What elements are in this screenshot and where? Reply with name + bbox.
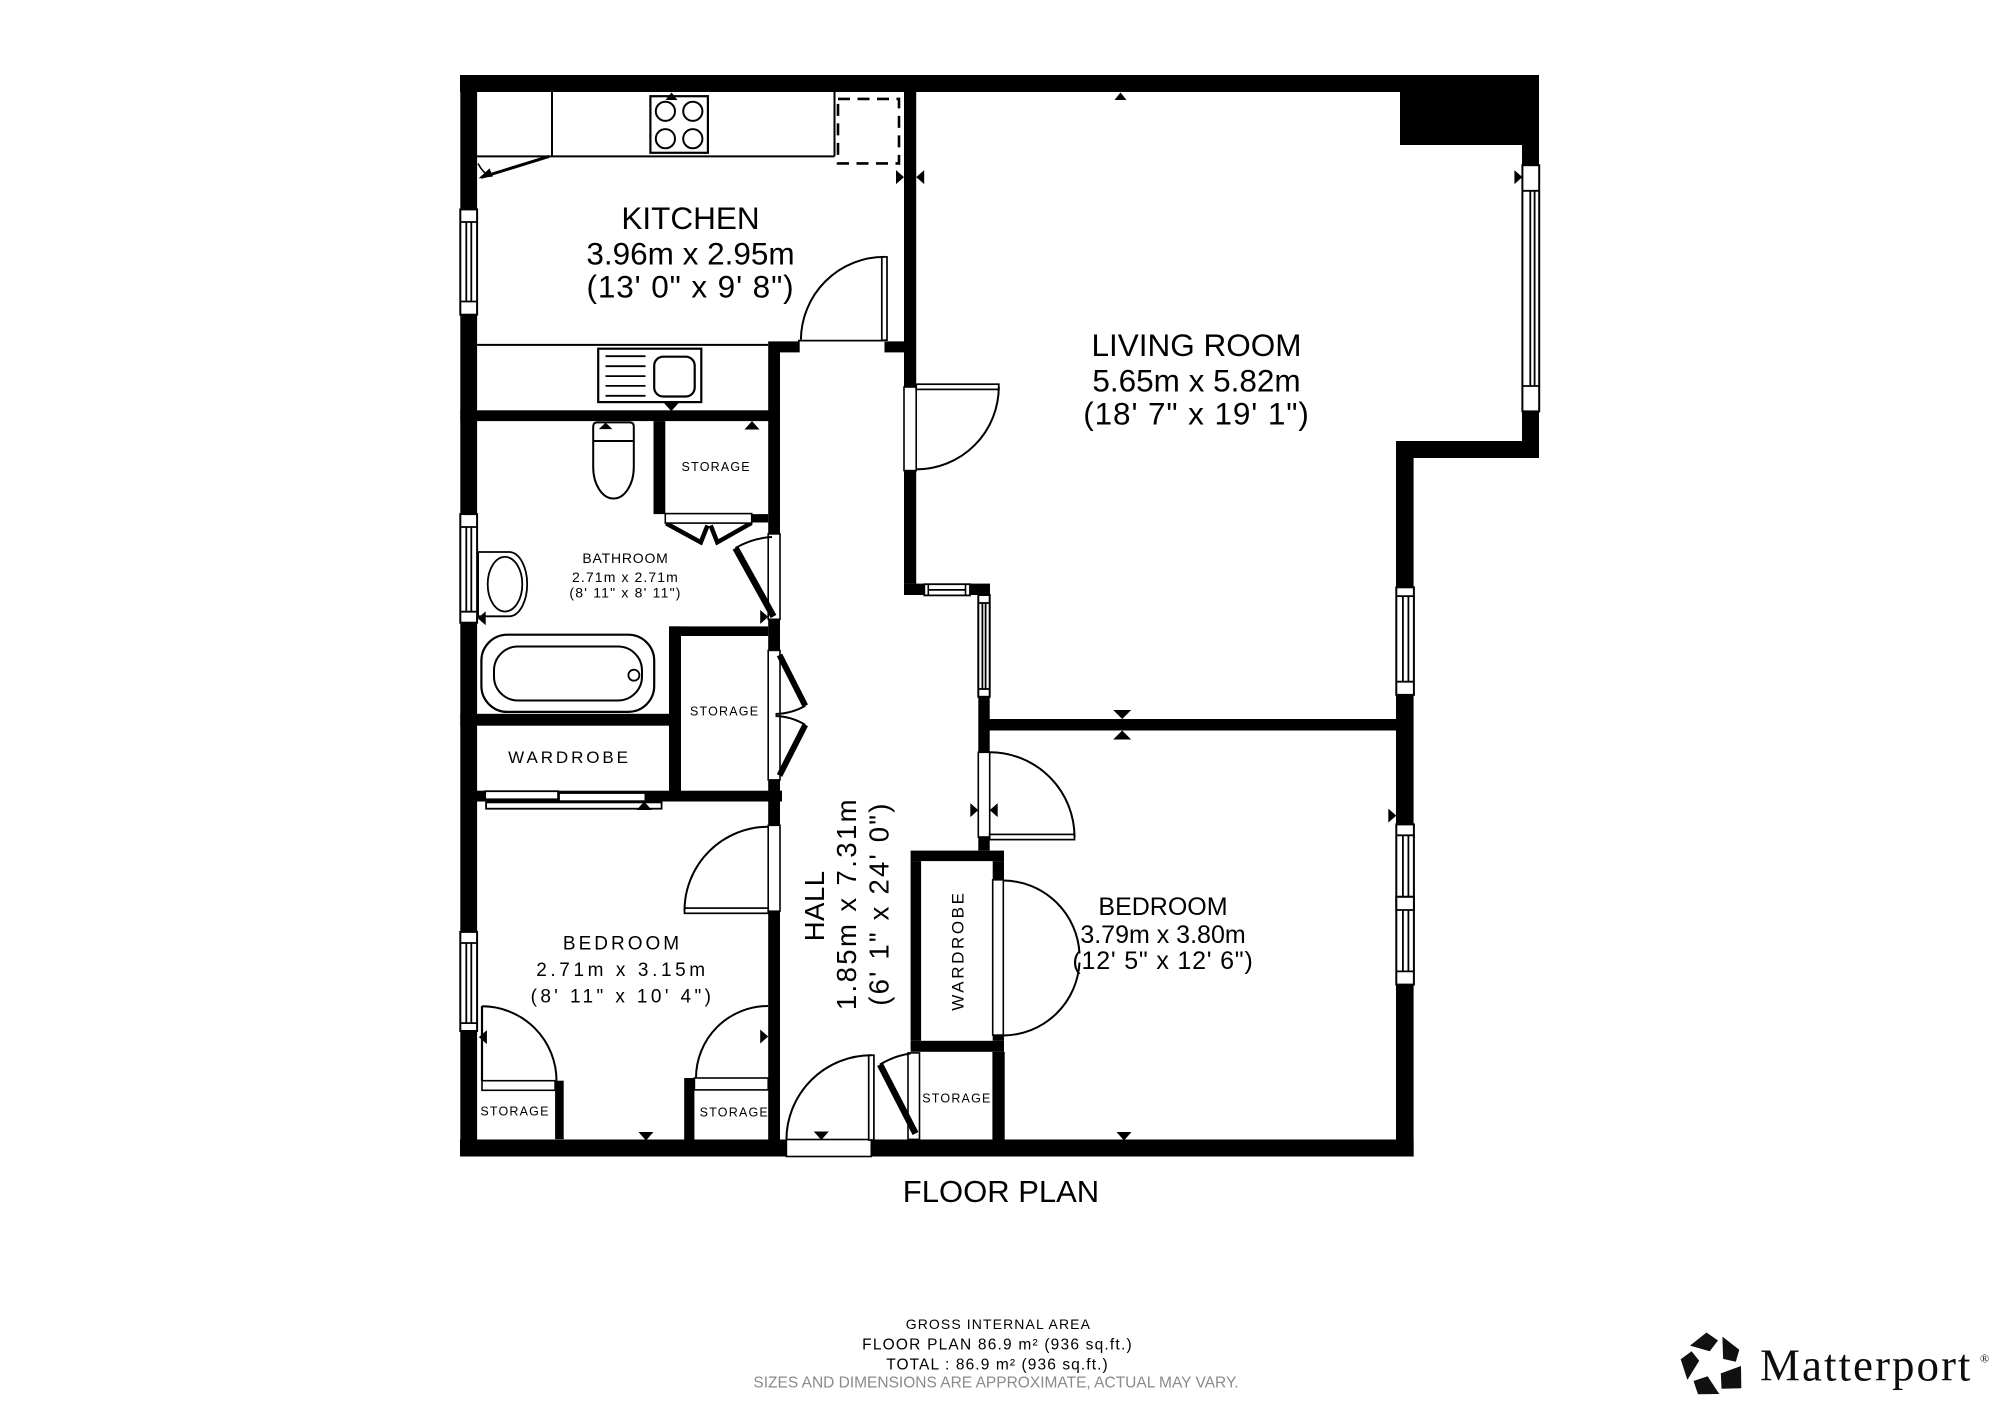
svg-text:FLOOR PLAN 86.9 m² (936 sq.ft.: FLOOR PLAN 86.9 m² (936 sq.ft.) (862, 1337, 1133, 1354)
svg-text:2.71m x 2.71m: 2.71m x 2.71m (572, 569, 679, 585)
svg-text:WARDROBE: WARDROBE (949, 890, 968, 1010)
svg-text:GROSS INTERNAL AREA: GROSS INTERNAL AREA (906, 1316, 1091, 1332)
svg-text:STORAGE: STORAGE (690, 705, 759, 719)
svg-text:STORAGE: STORAGE (480, 1105, 549, 1119)
svg-text:BEDROOM: BEDROOM (1098, 893, 1227, 921)
svg-text:(18' 7" x 19' 1"): (18' 7" x 19' 1") (1083, 396, 1310, 432)
svg-text:(8' 11" x 10' 4"): (8' 11" x 10' 4") (531, 987, 715, 1008)
svg-text:(13' 0" x 9' 8"): (13' 0" x 9' 8") (586, 269, 794, 305)
svg-text:1.85m x 7.31m: 1.85m x 7.31m (831, 797, 862, 1010)
svg-text:HALL: HALL (799, 870, 830, 941)
svg-text:BATHROOM: BATHROOM (582, 550, 668, 566)
svg-text:(8' 11" x 8' 11"): (8' 11" x 8' 11") (569, 585, 681, 601)
svg-text:(6' 1" x 24' 0"): (6' 1" x 24' 0") (864, 801, 895, 1005)
svg-text:(12' 5" x 12' 6"): (12' 5" x 12' 6") (1072, 947, 1253, 975)
svg-text:5.65m x 5.82m: 5.65m x 5.82m (1092, 363, 1300, 399)
svg-text:3.96m x 2.95m: 3.96m x 2.95m (586, 236, 794, 272)
svg-text:LIVING ROOM: LIVING ROOM (1091, 327, 1301, 363)
svg-text:BEDROOM: BEDROOM (563, 934, 682, 955)
svg-text:WARDROBE: WARDROBE (508, 748, 631, 767)
svg-text:Matterport: Matterport (1760, 1341, 1972, 1391)
svg-text:STORAGE: STORAGE (682, 460, 751, 474)
svg-text:STORAGE: STORAGE (922, 1092, 991, 1106)
svg-text:FLOOR PLAN: FLOOR PLAN (903, 1174, 1099, 1209)
svg-text:®: ® (1980, 1352, 1989, 1366)
svg-text:3.79m x 3.80m: 3.79m x 3.80m (1080, 921, 1245, 949)
svg-text:KITCHEN: KITCHEN (621, 200, 759, 236)
svg-text:TOTAL : 86.9 m² (936 sq.ft.): TOTAL : 86.9 m² (936 sq.ft.) (886, 1357, 1109, 1374)
svg-text:STORAGE: STORAGE (700, 1106, 769, 1120)
svg-text:SIZES AND DIMENSIONS ARE APPRO: SIZES AND DIMENSIONS ARE APPROXIMATE, AC… (753, 1375, 1238, 1392)
svg-text:2.71m x 3.15m: 2.71m x 3.15m (536, 960, 708, 981)
